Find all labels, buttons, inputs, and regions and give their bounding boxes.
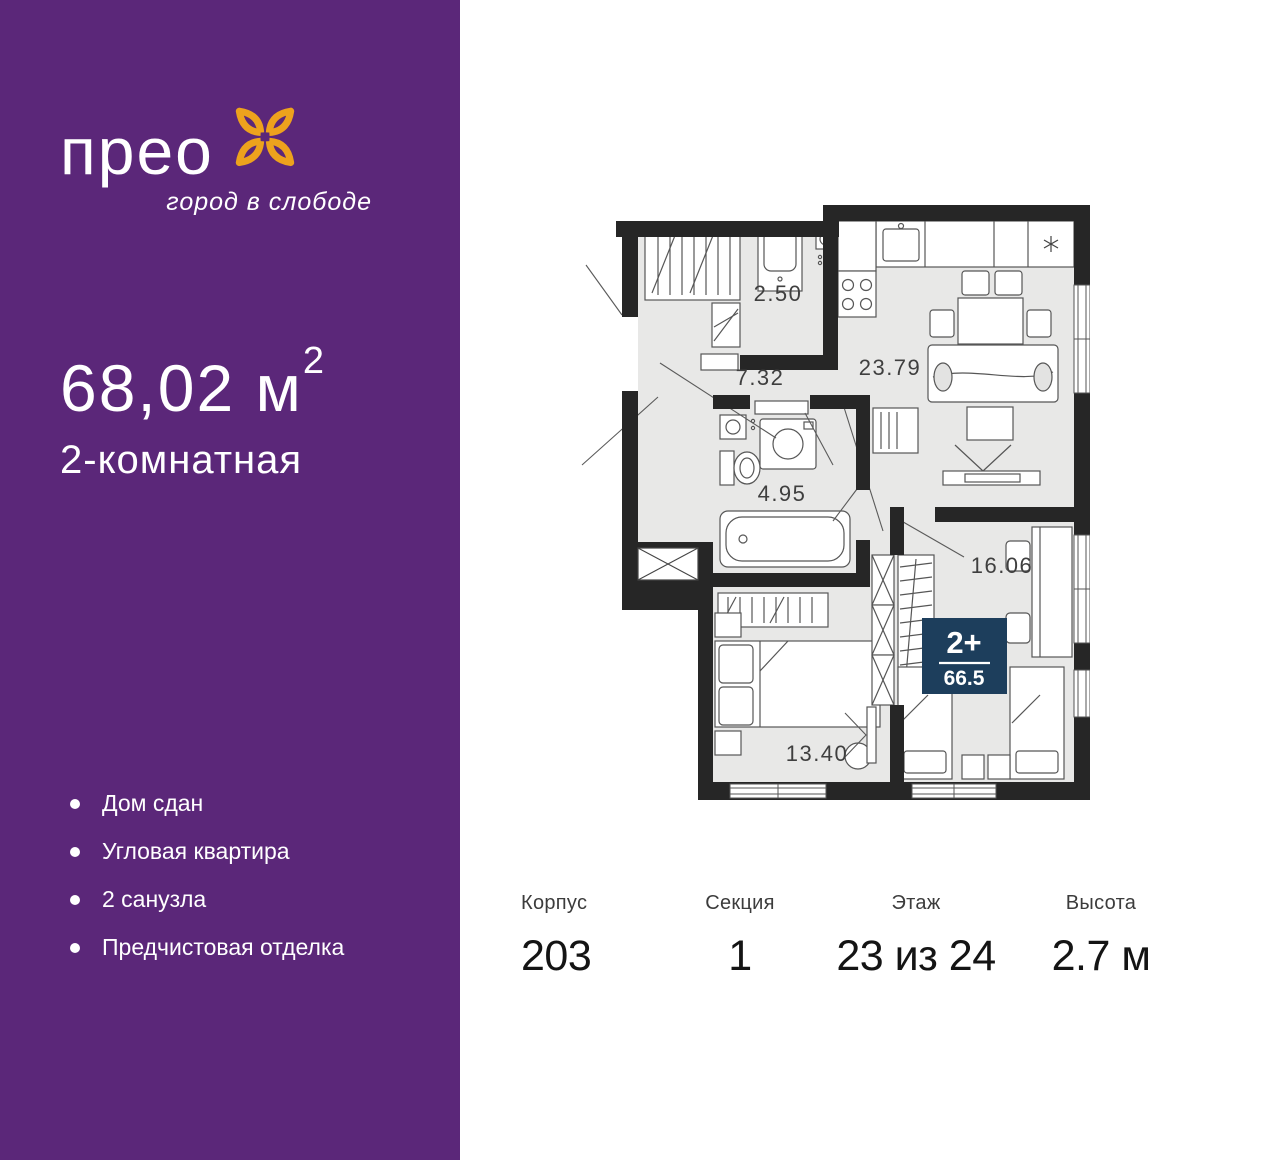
room-area-label: 23.79 (859, 355, 922, 380)
info-column-etazh: Этаж 23 из 24 (834, 892, 998, 981)
small-closet (712, 303, 740, 347)
nightstand (715, 613, 741, 637)
feature-item: Дом сдан (70, 790, 344, 817)
logo-flower-icon (226, 96, 304, 176)
feature-label: Угловая квартира (102, 838, 290, 865)
badge-total-area: 66.5 (944, 667, 985, 690)
badge-rooms-label: 2+ (946, 625, 981, 660)
chair (1027, 310, 1051, 337)
info-value: 203 (521, 932, 681, 981)
bullet-icon (70, 799, 80, 809)
info-value: 2.7 м (1028, 932, 1174, 981)
bath-door-leaf (755, 401, 808, 414)
nightstand (962, 755, 984, 779)
info-label: Корпус (521, 892, 681, 915)
nightstand (988, 755, 1010, 779)
logo-tagline: город в слободе (60, 188, 372, 217)
room-area-label: 2.50 (754, 281, 803, 306)
apartment-type: 2-комнатная (60, 438, 302, 483)
info-value: 23 из 24 (834, 932, 998, 981)
stove (838, 271, 876, 317)
logo: прео (60, 96, 380, 217)
shaft-closet (872, 555, 894, 705)
apartment-card: прео (0, 0, 1280, 1160)
info-column-sekciya: Секция 1 (675, 892, 805, 981)
door-leaf (701, 354, 738, 370)
dining-table (958, 298, 1023, 344)
feature-label: Дом сдан (102, 790, 203, 817)
window (730, 784, 826, 798)
double-bed (715, 641, 880, 727)
info-column-korpus: Корпус 203 (521, 892, 681, 981)
window (1074, 285, 1090, 393)
info-column-vysota: Высота 2.7 м (1028, 892, 1174, 981)
room-area-label: 4.95 (758, 481, 807, 506)
kitchen-cabinet (838, 221, 876, 271)
info-label: Секция (675, 892, 805, 915)
room-area-label: 13.40 (786, 741, 849, 766)
feature-label: 2 санузла (102, 886, 206, 913)
floor-plan: 2.50 7.32 23.79 4.95 16.06 13.40 2+ 66.5 (580, 205, 1090, 817)
info-label: Высота (1028, 892, 1174, 915)
logo-text: прео (60, 118, 214, 184)
desk (1032, 527, 1072, 657)
info-value: 1 (675, 932, 805, 981)
chair (930, 310, 954, 337)
kitchen-sink (883, 229, 919, 261)
feature-list: Дом сдан Угловая квартира 2 санузла Пред… (70, 790, 344, 982)
floor-plan-svg: 2.50 7.32 23.79 4.95 16.06 13.40 2+ 66.5 (580, 205, 1090, 817)
bullet-icon (70, 895, 80, 905)
desk-chair (1006, 613, 1030, 643)
washing-machine (760, 419, 816, 469)
info-label: Этаж (834, 892, 998, 915)
window (1074, 670, 1090, 717)
toilet (720, 451, 760, 485)
room-area-label: 7.32 (736, 365, 785, 390)
washbasin (720, 415, 746, 439)
area-superscript: 2 (303, 340, 324, 382)
bullet-icon (70, 847, 80, 857)
apartment-area: 68,02 м2 (60, 340, 324, 426)
vent-shaft (638, 548, 698, 580)
sidebar: прео (0, 0, 460, 1160)
feature-item: Предчистовая отделка (70, 934, 344, 961)
feature-item: Угловая квартира (70, 838, 344, 865)
rooms-badge: 2+ 66.5 (922, 618, 1007, 694)
area-value: 68,02 м (60, 351, 303, 425)
window (912, 784, 996, 798)
bullet-icon (70, 943, 80, 953)
bathtub (720, 511, 850, 567)
dresser (873, 408, 918, 453)
wardrobe-hatched (645, 228, 740, 300)
door-leaf (867, 707, 876, 763)
chair (995, 271, 1022, 295)
chair (962, 271, 989, 295)
nightstand (715, 731, 741, 755)
room-area-label: 16.06 (971, 553, 1034, 578)
window (1074, 535, 1090, 643)
feature-label: Предчистовая отделка (102, 934, 344, 961)
single-bed (1010, 667, 1064, 779)
feature-item: 2 санузла (70, 886, 344, 913)
coffee-table (967, 407, 1013, 440)
